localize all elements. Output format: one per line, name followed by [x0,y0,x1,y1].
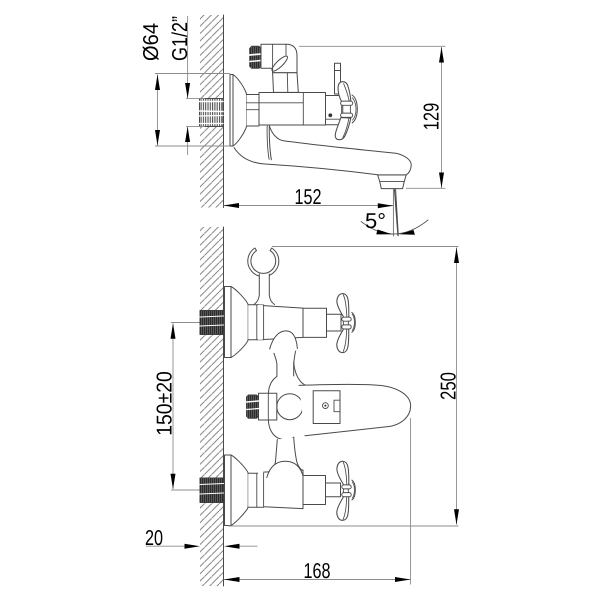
svg-text:152: 152 [295,185,322,209]
svg-text:5°: 5° [365,209,386,233]
svg-text:168: 168 [304,559,331,583]
svg-text:250: 250 [437,372,461,400]
svg-text:150±20: 150±20 [153,371,177,436]
svg-text:G1/2”: G1/2” [168,16,192,61]
svg-text:20: 20 [145,526,163,550]
svg-text:129: 129 [419,103,443,131]
svg-text:Ø64: Ø64 [139,23,163,61]
